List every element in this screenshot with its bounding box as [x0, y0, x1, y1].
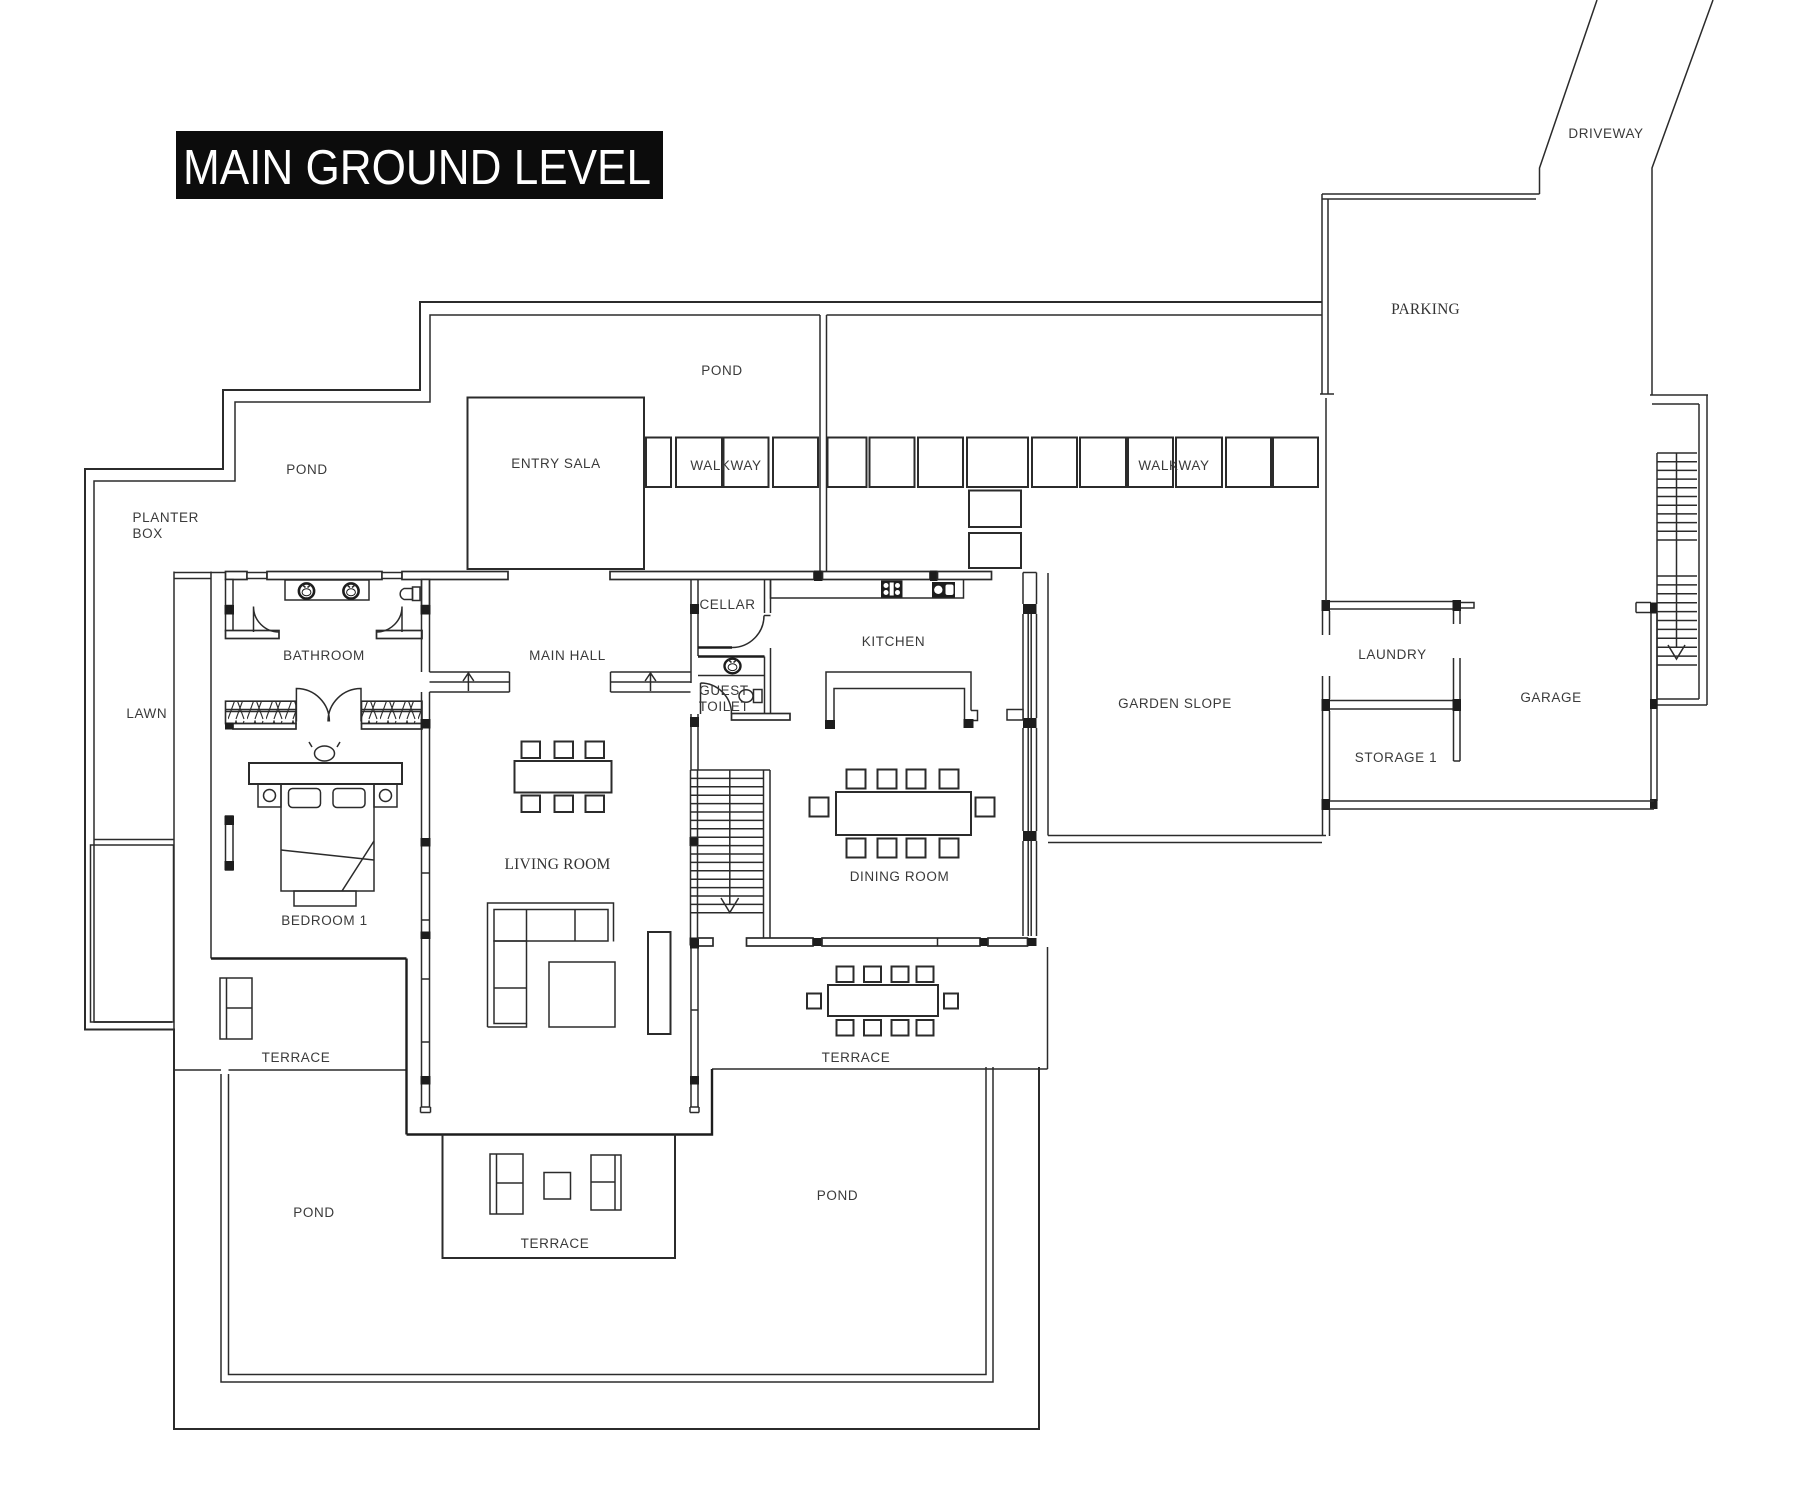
svg-text:PARKING: PARKING	[1391, 301, 1460, 318]
svg-text:POND: POND	[286, 462, 327, 477]
svg-text:GARDEN SLOPE: GARDEN SLOPE	[1118, 696, 1232, 711]
svg-text:KITCHEN: KITCHEN	[862, 634, 925, 649]
svg-text:TOILET: TOILET	[699, 699, 750, 714]
svg-text:DINING ROOM: DINING ROOM	[850, 869, 950, 884]
svg-text:MAIN GROUND LEVEL: MAIN GROUND LEVEL	[183, 141, 651, 195]
svg-text:BATHROOM: BATHROOM	[283, 648, 365, 663]
svg-text:POND: POND	[701, 363, 742, 378]
svg-text:LIVING ROOM: LIVING ROOM	[505, 856, 611, 873]
svg-text:TERRACE: TERRACE	[822, 1050, 891, 1065]
svg-text:ENTRY SALA: ENTRY SALA	[511, 456, 601, 471]
svg-text:POND: POND	[817, 1188, 858, 1203]
svg-text:GUEST: GUEST	[699, 683, 749, 698]
svg-text:DRIVEWAY: DRIVEWAY	[1568, 126, 1643, 141]
svg-text:TERRACE: TERRACE	[521, 1236, 590, 1251]
svg-text:LAWN: LAWN	[126, 706, 167, 721]
svg-text:BOX: BOX	[133, 526, 163, 541]
svg-text:GARAGE: GARAGE	[1520, 690, 1581, 705]
svg-text:POND: POND	[293, 1205, 334, 1220]
svg-text:MAIN HALL: MAIN HALL	[529, 648, 606, 663]
svg-text:WALKWAY: WALKWAY	[1138, 458, 1209, 473]
svg-text:CELLAR: CELLAR	[699, 597, 755, 612]
svg-text:PLANTER: PLANTER	[133, 510, 199, 525]
svg-text:LAUNDRY: LAUNDRY	[1358, 647, 1426, 662]
svg-text:BEDROOM 1: BEDROOM 1	[281, 913, 367, 928]
svg-text:STORAGE 1: STORAGE 1	[1355, 750, 1437, 765]
svg-text:WALKWAY: WALKWAY	[690, 458, 761, 473]
svg-text:TERRACE: TERRACE	[262, 1050, 331, 1065]
